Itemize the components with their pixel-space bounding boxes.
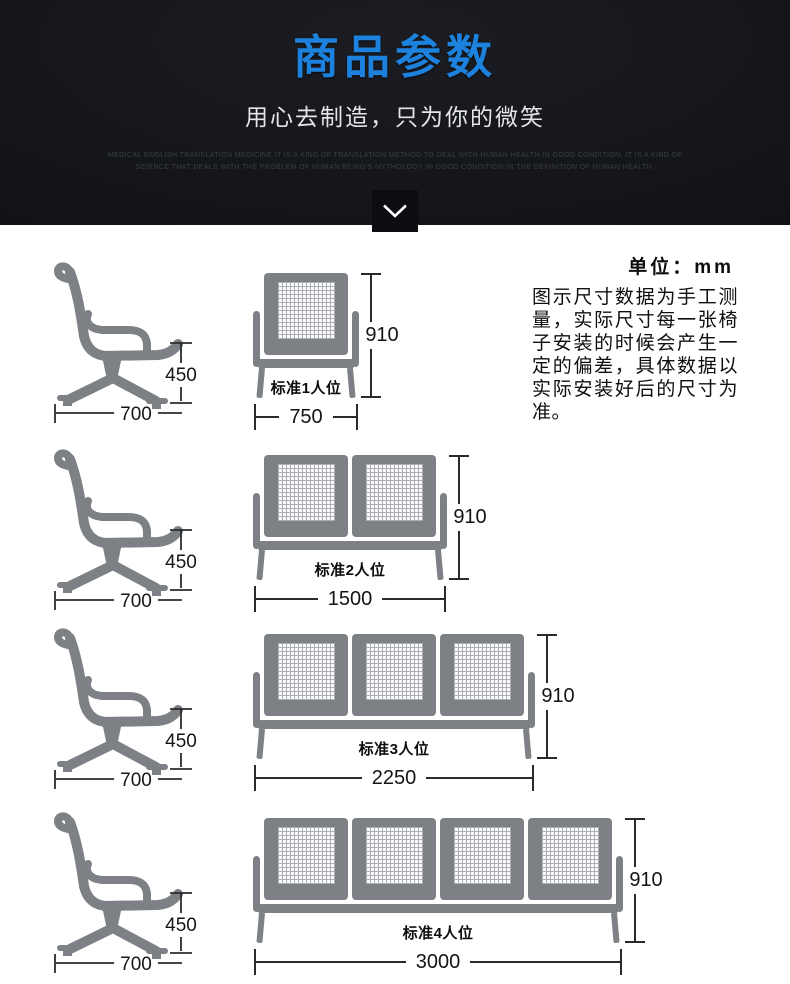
- chevron-down-button[interactable]: [372, 190, 418, 232]
- armrest-right: [440, 493, 447, 549]
- side-view-chair-diagram: 450 700: [40, 622, 240, 794]
- seat-height-dimension: 450: [165, 731, 197, 752]
- height-value: 910: [365, 322, 398, 349]
- width-dimension: 750: [254, 404, 358, 430]
- armrest-right: [352, 311, 359, 367]
- seat-unit: [440, 818, 524, 900]
- bench-legs-area: 标准4人位: [258, 913, 618, 943]
- measurement-note-panel: 单位：mm 图示尺寸数据为手工测量，实际尺寸每一张椅子安装的时候会产生一定的偏差…: [532, 252, 738, 424]
- height-value: 910: [629, 867, 662, 894]
- dim-line: [370, 275, 372, 322]
- seat-mesh: [278, 464, 335, 521]
- width-value: 2250: [362, 767, 427, 790]
- seat-mesh: [278, 827, 335, 884]
- page-title: 商品参数: [0, 0, 790, 87]
- chair-legs: [70, 378, 156, 401]
- height-value: 910: [541, 683, 574, 710]
- dim-line: [256, 416, 279, 418]
- bench-4-seat-diagram: 标准4人位 3000 910: [264, 818, 612, 975]
- side-view-chair-diagram: 450 700: [40, 806, 240, 978]
- seat-mesh: [542, 827, 599, 884]
- seat-mesh: [278, 643, 335, 700]
- chevron-down-icon: [381, 203, 409, 219]
- dim-line: [370, 349, 372, 396]
- dim-cap: [361, 396, 381, 398]
- side-view-chair-diagram: 450 700: [40, 443, 240, 615]
- seat-mesh: [366, 464, 423, 521]
- seat-unit: [440, 634, 524, 716]
- bench-seats: [264, 634, 524, 716]
- depth-dimension: 700: [120, 404, 152, 425]
- seat-unit: [352, 634, 436, 716]
- armrest-left: [253, 493, 260, 549]
- header-fine-print-line1: MEDICAL ENGLISH TRANSLATION MEDICINE IT …: [65, 150, 725, 162]
- bench-label: 标准3人位: [258, 738, 530, 759]
- seat-unit: [264, 634, 348, 716]
- seat-mesh: [366, 827, 423, 884]
- width-value: 1500: [318, 588, 383, 611]
- header-subtitle: 用心去制造，只为你的微笑: [0, 98, 790, 132]
- bench-legs-area: 标准3人位: [258, 729, 530, 759]
- width-value: 750: [279, 406, 332, 429]
- width-value: 3000: [406, 951, 471, 974]
- bench-beam: [258, 541, 442, 550]
- armrest-left: [253, 672, 260, 728]
- dim-line: [333, 416, 356, 418]
- seat-mesh: [454, 827, 511, 884]
- bench-beam: [258, 904, 618, 913]
- bench-beam: [258, 359, 354, 368]
- chair-armrest: [87, 314, 147, 351]
- seat-unit: [352, 818, 436, 900]
- seat-unit: [352, 455, 436, 537]
- seat-unit: [264, 818, 348, 900]
- bench-label: 标准4人位: [258, 922, 618, 943]
- bench-2-seat-diagram: 标准2人位 1500 910: [264, 455, 436, 612]
- bench-label: 标准1人位: [258, 377, 354, 398]
- bench-seats: [264, 273, 348, 355]
- width-dimension: 2250: [254, 765, 534, 791]
- depth-dimension: 700: [120, 591, 152, 612]
- height-dimension: 910: [624, 818, 646, 943]
- armrest-right: [528, 672, 535, 728]
- bench-1-seat-diagram: 标准1人位 750 910: [264, 273, 348, 430]
- dim-cap: [356, 404, 358, 430]
- armrest-left: [253, 311, 260, 367]
- bench-legs-area: 标准1人位: [258, 368, 354, 398]
- seat-height-dimension: 450: [165, 915, 197, 936]
- header-banner: 商品参数 用心去制造，只为你的微笑 MEDICAL ENGLISH TRANSL…: [0, 0, 790, 225]
- height-dimension: 910: [360, 273, 382, 398]
- measurement-note: 图示尺寸数据为手工测量，实际尺寸每一张椅子安装的时候会产生一定的偏差，具体数据以…: [532, 286, 738, 424]
- seat-unit: [264, 455, 348, 537]
- bench-legs-area: 标准2人位: [258, 550, 442, 580]
- height-value: 910: [453, 504, 486, 531]
- bench-3-seat-diagram: 标准3人位 2250 910: [264, 634, 524, 791]
- depth-dimension: 700: [120, 770, 152, 791]
- height-dimension: 910: [448, 455, 470, 580]
- seat-unit: [528, 818, 612, 900]
- seat-unit: [264, 273, 348, 355]
- seat-mesh: [366, 643, 423, 700]
- seat-mesh: [278, 282, 335, 339]
- side-view-chair-diagram: 450 700: [40, 256, 240, 428]
- height-dimension: 910: [536, 634, 558, 759]
- width-dimension: 3000: [254, 949, 622, 975]
- chair-seat: [104, 344, 178, 356]
- depth-dimension: 700: [120, 954, 152, 975]
- bench-seats: [264, 818, 612, 900]
- seat-height-dimension: 450: [165, 365, 197, 386]
- header-fine-print-line2: SCIENCE THAT DEALS WITH THE PROBLEM OF H…: [65, 162, 725, 174]
- bench-label: 标准2人位: [258, 559, 442, 580]
- armrest-left: [253, 856, 260, 912]
- bench-beam: [258, 720, 530, 729]
- width-dimension: 1500: [254, 586, 446, 612]
- bench-seats: [264, 455, 436, 537]
- seat-height-dimension: 450: [165, 552, 197, 573]
- seat-mesh: [454, 643, 511, 700]
- armrest-right: [616, 856, 623, 912]
- unit-label: 单位：mm: [532, 252, 738, 279]
